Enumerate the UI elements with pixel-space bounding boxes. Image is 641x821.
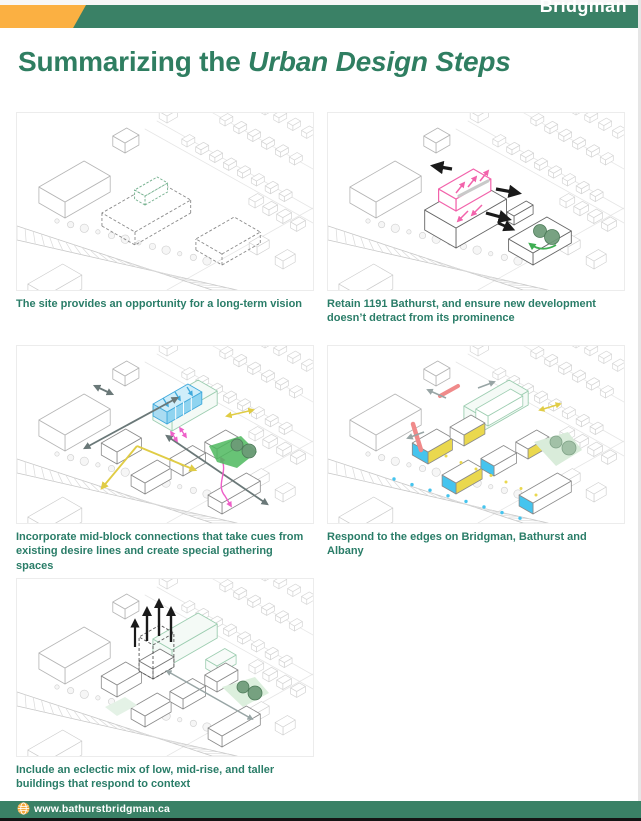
title-prefix: Summarizing the	[18, 46, 248, 77]
header-orange-accent	[0, 5, 86, 28]
panel-mid-block-connections: Incorporate mid-block connections that t…	[16, 345, 312, 573]
caption-eclectic-mix: Include an eclectic mix of low, mid-rise…	[16, 763, 312, 792]
figure-mid-block-connections	[16, 345, 314, 524]
document-page: Bridgman Summarizing the Urban Design St…	[0, 0, 641, 821]
globe-icon	[17, 802, 30, 815]
brand-logo: Bridgman	[540, 0, 627, 17]
panel-respond-to-edges: Respond to the edges on Bridgman, Bathur…	[327, 345, 623, 559]
figure-eclectic-mix	[16, 578, 314, 757]
panel-eclectic-mix: Include an eclectic mix of low, mid-rise…	[16, 578, 312, 792]
panel-retain-1191-bathurst: Retain 1191 Bathurst, and ensure new dev…	[327, 112, 623, 326]
figure-long-term-vision	[16, 112, 314, 291]
caption-long-term-vision: The site provides an opportunity for a l…	[16, 297, 312, 311]
caption-respond-to-edges: Respond to the edges on Bridgman, Bathur…	[327, 530, 623, 559]
panel-long-term-vision: The site provides an opportunity for a l…	[16, 112, 312, 311]
figure-respond-to-edges	[327, 345, 625, 524]
title-emphasis: Urban Design Steps	[248, 46, 510, 77]
footer-url-link[interactable]: www.bathurstbridgman.ca	[34, 803, 170, 815]
header-bar: Bridgman	[0, 5, 641, 28]
caption-retain-1191-bathurst: Retain 1191 Bathurst, and ensure new dev…	[327, 297, 623, 326]
figure-retain-1191-bathurst	[327, 112, 625, 291]
page-title: Summarizing the Urban Design Steps	[18, 46, 511, 78]
caption-mid-block-connections: Incorporate mid-block connections that t…	[16, 530, 312, 573]
